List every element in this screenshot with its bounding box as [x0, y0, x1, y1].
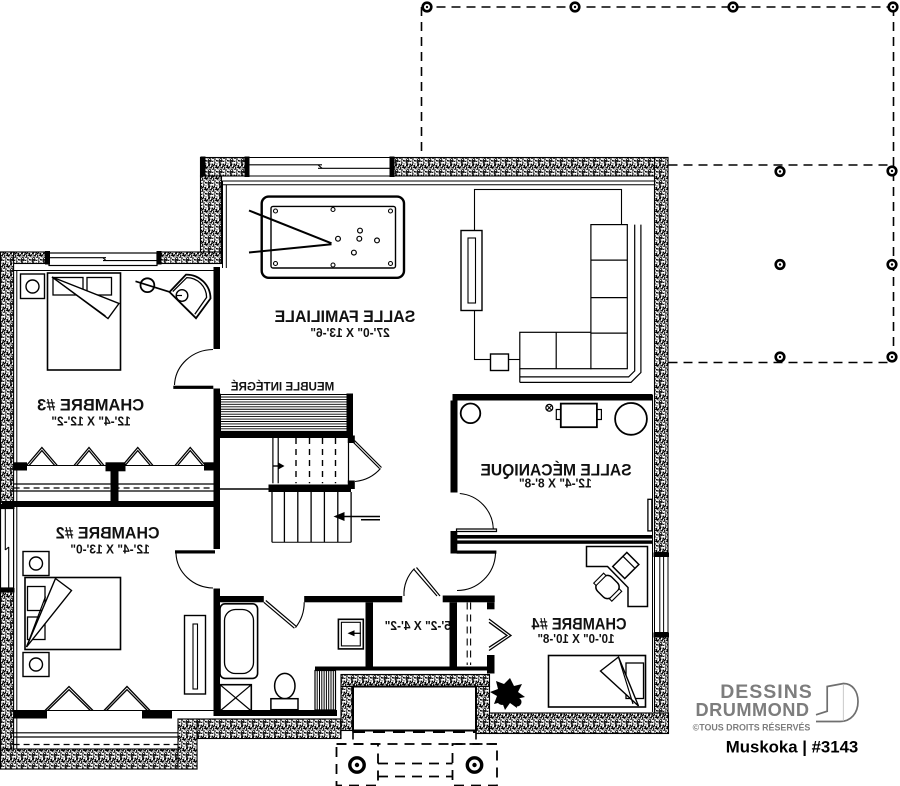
- svg-text:SALLE FAMILIALE: SALLE FAMILIALE: [274, 308, 415, 326]
- svg-text:5'-2" X 4'-2": 5'-2" X 4'-2": [385, 619, 451, 633]
- svg-text:©TOUS DROITS RÉSERVÉS: ©TOUS DROITS RÉSERVÉS: [693, 723, 811, 733]
- svg-text:12'-4" X 12'-2": 12'-4" X 12'-2": [51, 414, 130, 428]
- svg-text:10'-0" X 10'-8": 10'-0" X 10'-8": [537, 631, 614, 646]
- svg-text:27'-0" X 13'-6": 27'-0" X 13'-6": [310, 326, 389, 340]
- svg-text:DRUMMOND: DRUMMOND: [695, 700, 809, 720]
- svg-text:MEUBLE INTÉGRÉ: MEUBLE INTÉGRÉ: [231, 378, 335, 393]
- svg-text:12'-4" X 13'-0": 12'-4" X 13'-0": [70, 542, 149, 556]
- svg-text:12'-4" X 8'-8": 12'-4" X 8'-8": [519, 476, 592, 490]
- svg-text:CHAMBRE #2: CHAMBRE #2: [56, 524, 160, 543]
- svg-text:CHAMBRE #3: CHAMBRE #3: [37, 395, 144, 414]
- svg-text:Muskoka | #3143: Muskoka | #3143: [726, 738, 859, 757]
